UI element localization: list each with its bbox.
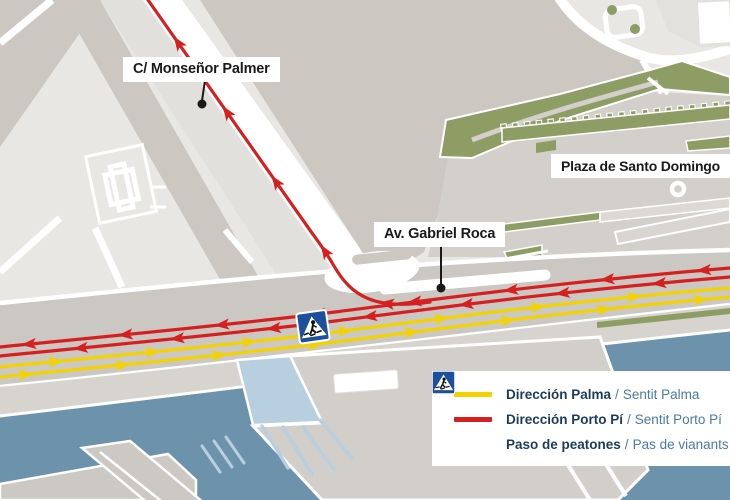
street-label-text: Av. Gabriel Roca [384, 226, 495, 242]
legend-separator: / [625, 437, 629, 452]
street-label-plaza-santo-domingo: Plaza de Santo Domingo [551, 154, 730, 178]
legend-item-direccion-palma: Dirección Palma/Sentit Palma [452, 382, 730, 407]
legend-primary-text: Dirección Palma [506, 387, 611, 402]
legend-secondary-text: Sentit Palma [623, 387, 700, 402]
legend-separator: / [627, 412, 631, 427]
yellow-line-swatch [452, 392, 494, 397]
callout-dot-gabriel-roca [437, 284, 446, 293]
traffic-map-infographic: C/ Monseñor Palmer Plaza de Santo Doming… [0, 0, 730, 500]
street-label-text: Plaza de Santo Domingo [561, 158, 720, 174]
legend-secondary-text: Pas de vianants [633, 437, 729, 452]
legend-label: Dirección Porto Pí/Sentit Porto Pí [506, 412, 722, 427]
street-label-text: C/ Monseñor Palmer [133, 61, 270, 77]
legend-secondary-text: Sentit Porto Pí [635, 412, 722, 427]
legend-separator: / [615, 387, 619, 402]
crosswalk-sign-icon [296, 310, 330, 344]
street-label-monsenor-palmer: C/ Monseñor Palmer [123, 57, 280, 82]
tree-green-patch [607, 5, 617, 15]
legend: Dirección Palma/Sentit Palma Dirección P… [432, 371, 730, 466]
legend-label: Dirección Palma/Sentit Palma [506, 387, 699, 402]
legend-primary-text: Dirección Porto Pí [506, 412, 623, 427]
street-label-gabriel-roca: Av. Gabriel Roca [374, 222, 505, 247]
red-line-swatch [452, 417, 494, 422]
legend-item-direccion-porto-pi: Dirección Porto Pí/Sentit Porto Pí [452, 407, 730, 432]
tree-green-patch [630, 24, 640, 34]
legend-item-paso-de-peatones: Paso de peatones/Pas de vianants [452, 432, 730, 457]
legend-label: Paso de peatones/Pas de vianants [506, 437, 729, 452]
callout-dot-monsenor-palmer [198, 100, 207, 109]
quay-building [333, 370, 398, 393]
legend-primary-text: Paso de peatones [506, 437, 621, 452]
